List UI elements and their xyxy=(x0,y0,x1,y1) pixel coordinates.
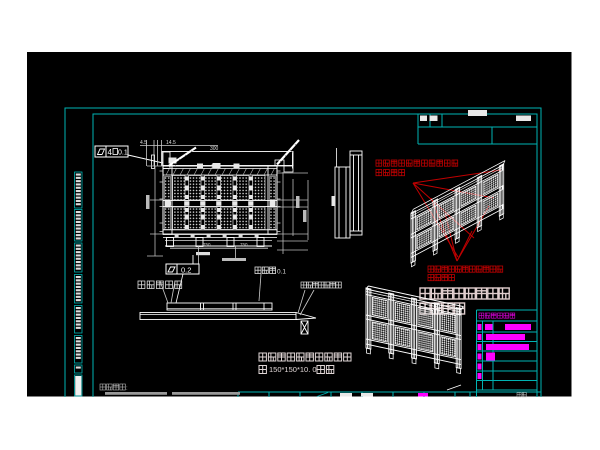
svg-text:0.1: 0.1 xyxy=(277,269,286,276)
svg-text:750: 750 xyxy=(203,242,211,247)
svg-text:0.2: 0.2 xyxy=(181,266,191,275)
svg-text:150*150*10. 0: 150*150*10. 0 xyxy=(269,365,317,374)
svg-text:0.1: 0.1 xyxy=(118,150,128,157)
svg-text:750: 750 xyxy=(240,242,248,247)
svg-text:4: 4 xyxy=(108,148,113,157)
